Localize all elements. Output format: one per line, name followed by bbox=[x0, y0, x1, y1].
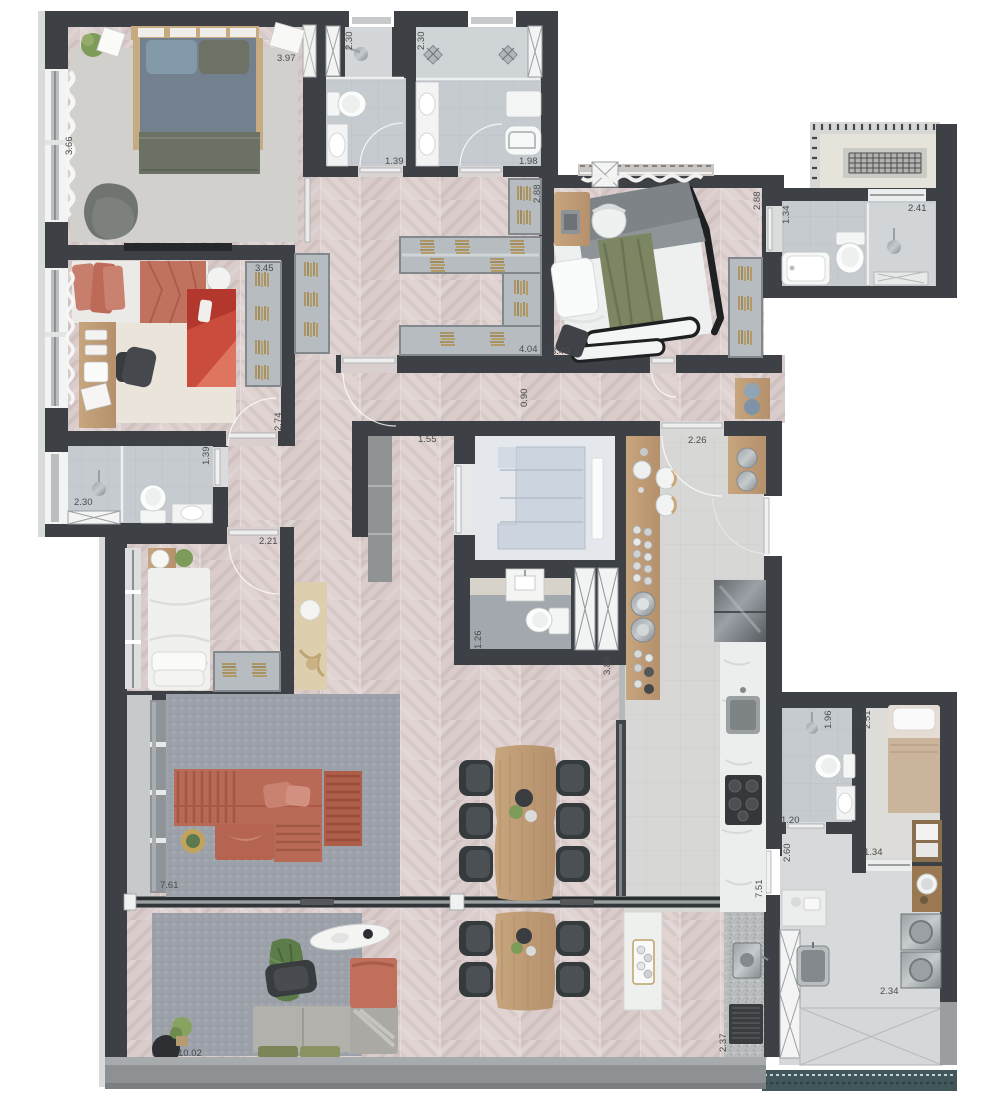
svg-text:1.96: 1.96 bbox=[823, 711, 834, 730]
svg-text:1.39: 1.39 bbox=[201, 447, 212, 466]
svg-text:4.04: 4.04 bbox=[519, 344, 538, 355]
svg-text:2.26: 2.26 bbox=[688, 435, 707, 446]
svg-text:1.26: 1.26 bbox=[473, 631, 484, 650]
svg-text:2.30: 2.30 bbox=[344, 32, 355, 51]
svg-text:3.66: 3.66 bbox=[64, 137, 75, 156]
svg-text:2.41: 2.41 bbox=[908, 203, 927, 214]
svg-text:1.98: 1.98 bbox=[519, 156, 538, 167]
svg-text:10.02: 10.02 bbox=[178, 1048, 202, 1059]
svg-text:7.51: 7.51 bbox=[754, 880, 765, 899]
svg-text:2.88: 2.88 bbox=[752, 192, 763, 211]
svg-text:1.34: 1.34 bbox=[864, 847, 883, 858]
svg-text:1.34: 1.34 bbox=[781, 206, 792, 225]
svg-text:3.49: 3.49 bbox=[551, 346, 570, 357]
svg-text:2.60: 2.60 bbox=[782, 844, 793, 863]
svg-text:2.74: 2.74 bbox=[273, 413, 284, 432]
svg-text:7.61: 7.61 bbox=[160, 880, 179, 891]
svg-text:2.51: 2.51 bbox=[862, 711, 873, 730]
svg-text:2.34: 2.34 bbox=[880, 986, 899, 997]
svg-text:2.30: 2.30 bbox=[416, 32, 427, 51]
svg-text:2.30: 2.30 bbox=[74, 497, 93, 508]
svg-text:3.89: 3.89 bbox=[602, 657, 613, 676]
svg-text:1.55: 1.55 bbox=[418, 434, 437, 445]
svg-text:2.37: 2.37 bbox=[718, 1034, 729, 1053]
svg-text:3.97: 3.97 bbox=[277, 53, 296, 64]
svg-text:1.20: 1.20 bbox=[781, 815, 800, 826]
svg-text:2.21: 2.21 bbox=[259, 536, 278, 547]
svg-text:1.39: 1.39 bbox=[385, 156, 404, 167]
svg-text:0.90: 0.90 bbox=[519, 389, 530, 408]
svg-text:3.45: 3.45 bbox=[255, 263, 274, 274]
svg-text:2.88: 2.88 bbox=[532, 185, 543, 204]
